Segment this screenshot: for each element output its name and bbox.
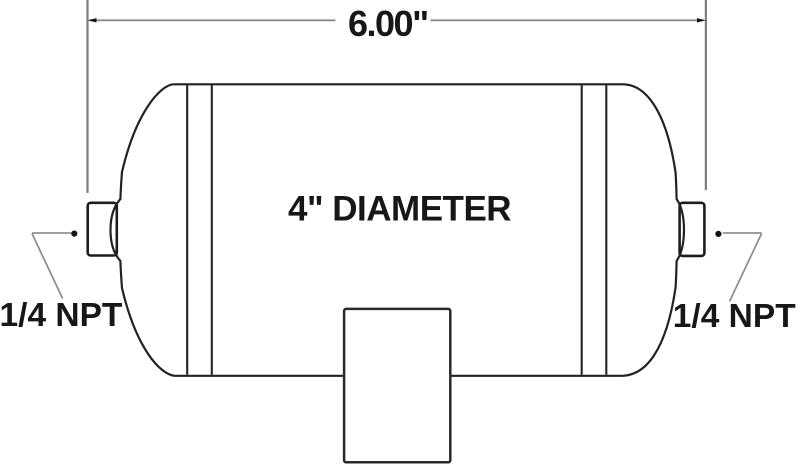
svg-text:6.00": 6.00" [348, 3, 428, 44]
svg-text:1/4 NPT: 1/4 NPT [0, 297, 123, 334]
svg-text:4" DIAMETER: 4" DIAMETER [288, 190, 511, 229]
svg-text:1/4 NPT: 1/4 NPT [673, 298, 796, 335]
